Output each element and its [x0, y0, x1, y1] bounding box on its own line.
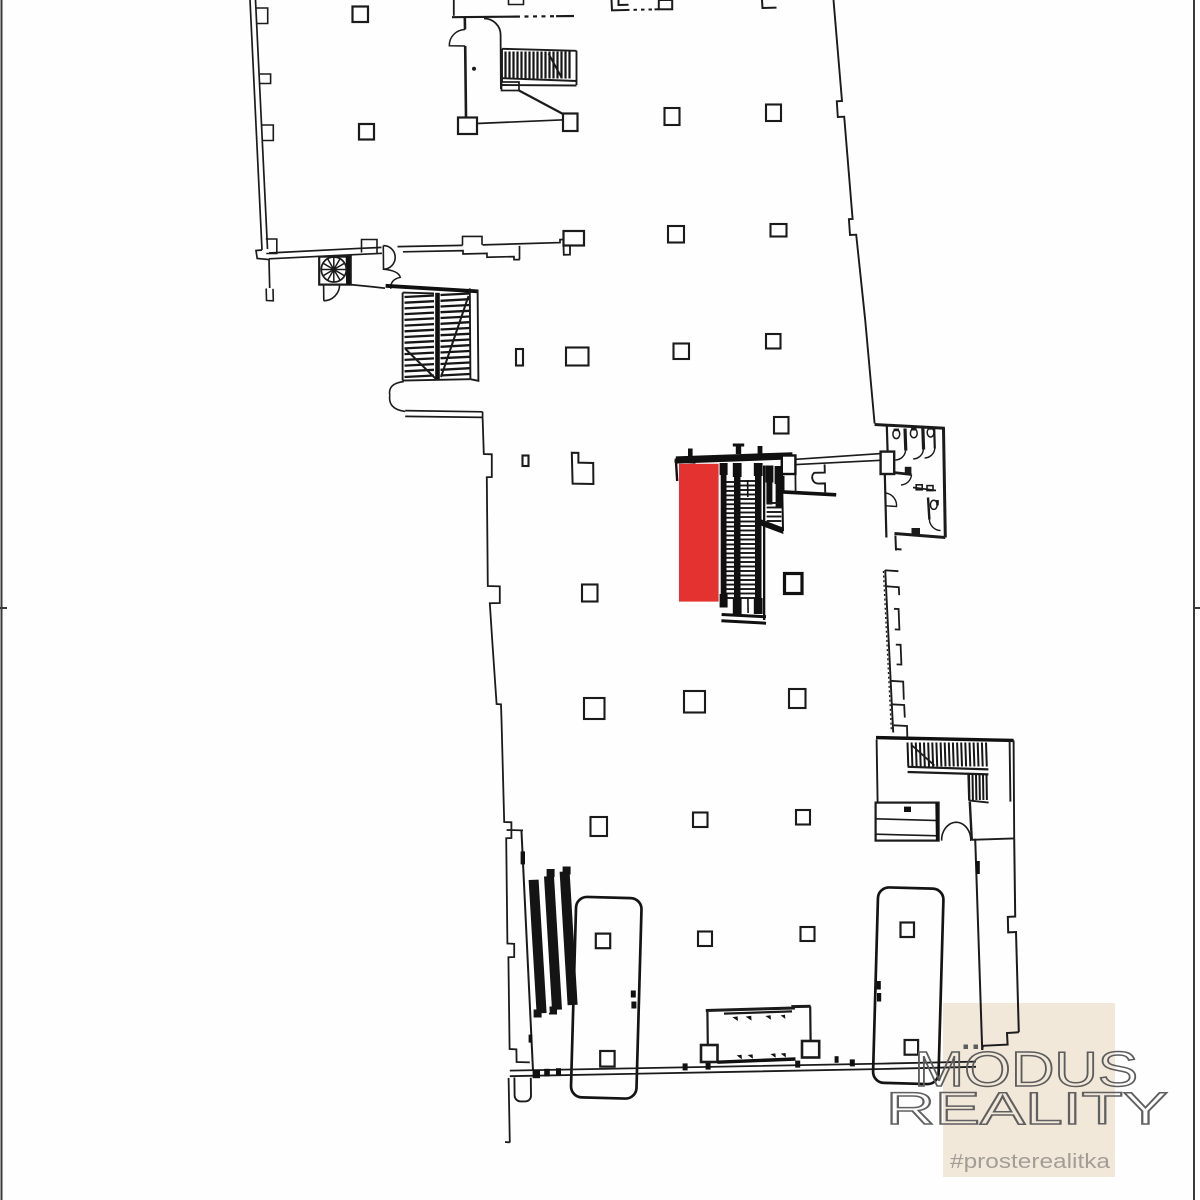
svg-text:#prosterealitka: #prosterealitka [950, 1150, 1111, 1173]
svg-text:REALITY: REALITY [886, 1083, 1168, 1134]
